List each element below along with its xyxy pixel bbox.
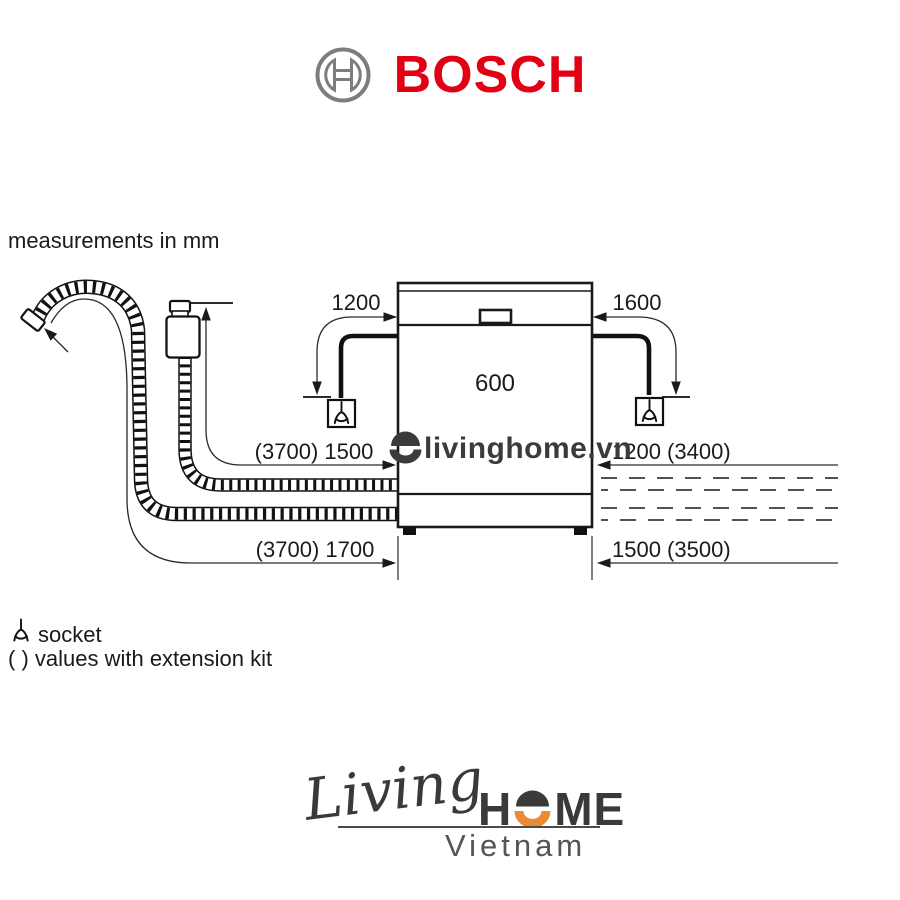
watermark-text: livinghome.vn xyxy=(424,432,632,465)
dim-supply-hose-label: (3700) 1500 xyxy=(255,439,374,464)
power-cable-left xyxy=(341,336,398,398)
dishwasher-handle xyxy=(480,310,511,323)
vietnam-label: Vietnam xyxy=(445,830,586,861)
dim-right-cable-label: 1600 xyxy=(613,290,662,315)
dim-left-cable-label: 1200 xyxy=(332,290,381,315)
socket-icon-left xyxy=(328,400,355,427)
socket-icon-right xyxy=(636,398,663,425)
power-cable-right xyxy=(592,336,649,395)
dim-line-left-cable xyxy=(317,317,396,388)
legend: socket ( ) values with extension kit xyxy=(8,620,272,672)
water-tap-icon xyxy=(167,301,200,358)
legend-extension-label: ( ) values with extension kit xyxy=(8,646,272,671)
living-script-text: Living xyxy=(301,751,486,829)
dishwasher-foot-left xyxy=(403,527,416,535)
dim-drain-hose-label: (3700) 1700 xyxy=(256,537,375,562)
dim-line-right-cable xyxy=(594,317,676,388)
legend-socket-label: socket xyxy=(38,622,102,647)
dishwasher-foot-right xyxy=(574,527,587,535)
livinghome-footer-logo: Living H ME Vietnam xyxy=(290,762,620,877)
watermark: livinghome.vn xyxy=(391,432,632,466)
dim-width-label: 600 xyxy=(475,370,515,397)
home-o-icon xyxy=(513,788,553,828)
dim-right-bottom-label: 1500 (3500) xyxy=(612,537,731,562)
dashed-extension-lines xyxy=(601,478,838,520)
legend-socket-icon xyxy=(14,620,27,641)
